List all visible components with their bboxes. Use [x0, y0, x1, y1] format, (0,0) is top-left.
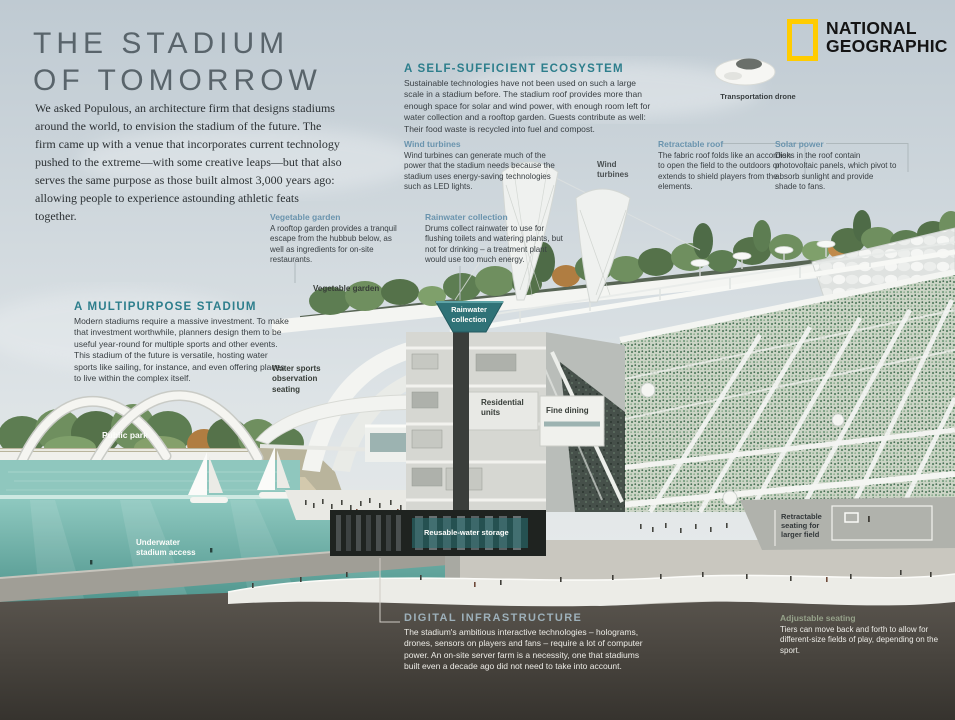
annotation-heading: Wind turbines	[404, 139, 558, 149]
infographic-page: { "header": { "title": "THE STADIUM\nOF …	[0, 0, 955, 720]
intro-paragraph: We asked Populous, an architecture firm …	[35, 99, 343, 225]
transportation-drone-icon	[715, 59, 775, 86]
natgeo-yellow-frame-icon	[787, 19, 818, 61]
annotation-rainwater-collection: Rainwater collection Drums collect rainw…	[425, 212, 567, 266]
annotation-body: Tiers can move back and forth to allow f…	[780, 625, 942, 656]
section-digital-infrastructure: DIGITAL INFRASTRUCTURE The stadium's amb…	[404, 612, 646, 673]
annotation-vegetable-garden: Vegetable garden A rooftop garden provid…	[270, 212, 400, 266]
section-ecosystem: A SELF-SUFFICIENT ECOSYSTEM Sustainable …	[404, 63, 656, 135]
annotation-wind-turbines: Wind turbines Wind turbines can generate…	[404, 139, 558, 193]
national-geographic-logo: NATIONAL GEOGRAPHIC	[787, 19, 948, 61]
section-multipurpose: A MULTIPURPOSE STADIUM Modern stadiums r…	[74, 301, 292, 384]
rainwater-column	[453, 330, 469, 520]
section-heading: A MULTIPURPOSE STADIUM	[74, 301, 292, 313]
label-water-sports-seating: Water sports observation seating	[272, 364, 321, 395]
section-body: Modern stadiums require a massive invest…	[74, 316, 292, 384]
annotation-heading: Rainwater collection	[425, 212, 567, 222]
label-transportation-drone: Transportation drone	[698, 92, 818, 101]
label-wind-turbines: Wind turbines	[597, 160, 629, 181]
annotation-heading: Vegetable garden	[270, 212, 400, 222]
annotation-heading: Solar power	[775, 139, 897, 149]
annotation-body: A rooftop garden provides a tranquil esc…	[270, 224, 400, 266]
natgeo-wordmark: NATIONAL GEOGRAPHIC	[826, 19, 948, 55]
annotation-adjustable-seating: Adjustable seating Tiers can move back a…	[780, 613, 942, 656]
label-retractable-seating: Retractable seating for larger field	[781, 512, 822, 539]
fine-dining-block	[540, 396, 604, 446]
annotation-solar-power: Solar power Disks in the roof contain ph…	[775, 139, 897, 193]
section-heading: A SELF-SUFFICIENT ECOSYSTEM	[404, 63, 656, 75]
section-body: Sustainable technologies have not been u…	[404, 78, 656, 135]
label-underwater-access: Underwater stadium access	[136, 538, 196, 559]
badge-reusable-water-storage: Reusable-water storage	[424, 528, 509, 538]
section-heading: DIGITAL INFRASTRUCTURE	[404, 612, 646, 624]
page-title: THE STADIUM OF TOMORROW	[33, 26, 322, 99]
label-vegetable-garden: Vegetable garden	[313, 284, 379, 294]
annotation-body: Disks in the roof contain photovoltaic p…	[775, 151, 897, 193]
label-residential-units: Residential units	[481, 398, 524, 419]
annotation-body: Wind turbines can generate much of the p…	[404, 151, 558, 193]
annotation-body: Drums collect rainwater to use for flush…	[425, 224, 567, 266]
section-body: The stadium's ambitious interactive tech…	[404, 627, 646, 673]
badge-rainwater-collection: Rainwater collection	[436, 305, 502, 325]
annotation-heading: Adjustable seating	[780, 613, 942, 623]
label-fine-dining: Fine dining	[546, 406, 589, 416]
label-public-park: Public park	[102, 430, 148, 441]
